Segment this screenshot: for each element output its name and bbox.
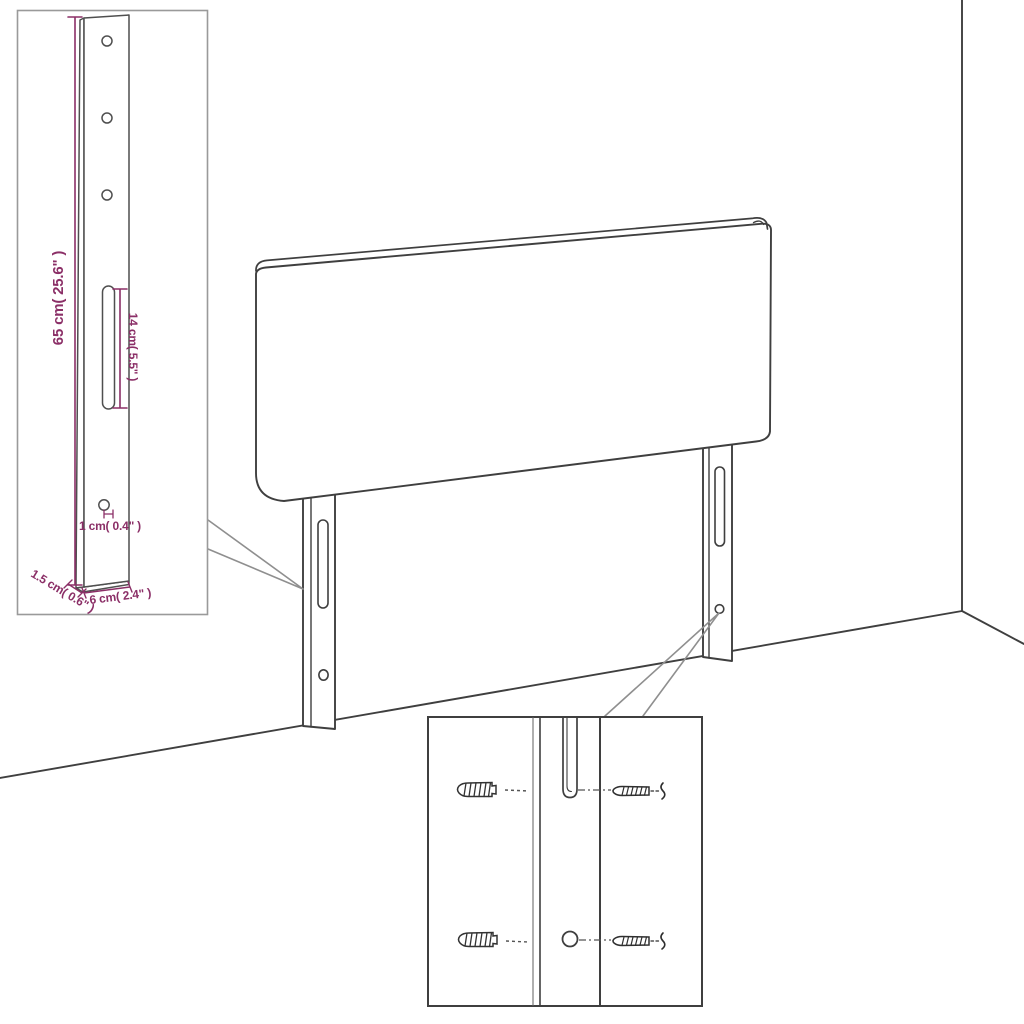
bracket-hole-3 <box>102 190 112 200</box>
diagram-canvas: 65 cm( 25.6" ) 14 cm( 5.5" ) 1 cm( 0.4" … <box>0 0 1024 1024</box>
left-leg-slot <box>318 520 328 608</box>
dim-slot-label: 14 cm( 5.5" ) <box>126 313 140 382</box>
callout-wedge-right <box>605 613 719 716</box>
dim-height-label: 65 cm( 25.6" ) <box>50 251 67 346</box>
headboard-panel <box>256 224 771 501</box>
inset-mounting-box <box>428 717 702 1006</box>
bracket-slot <box>103 286 115 409</box>
right-leg-hole <box>715 605 724 614</box>
bracket-small-hole <box>99 500 109 510</box>
callout-lines <box>208 520 719 716</box>
left-leg-hole <box>319 670 328 680</box>
product-dimension-diagram: 65 cm( 25.6" ) 14 cm( 5.5" ) 1 cm( 0.4" … <box>0 0 1024 1024</box>
inset-leg-detail: 65 cm( 25.6" ) 14 cm( 5.5" ) 1 cm( 0.4" … <box>18 11 208 616</box>
bracket-hole-1 <box>102 36 112 46</box>
callout-wedge-left <box>208 520 303 589</box>
right-leg-slot <box>715 467 725 546</box>
leg-bracket <box>76 15 129 592</box>
floor-line-right <box>962 611 1024 644</box>
bracket-hole-2 <box>102 113 112 123</box>
headboard-drawing <box>256 218 771 729</box>
left-leg <box>303 487 335 729</box>
dim-hole-label: 1 cm( 0.4" ) <box>79 519 141 533</box>
right-leg <box>703 437 732 661</box>
inset-mounting-detail <box>428 717 702 1006</box>
